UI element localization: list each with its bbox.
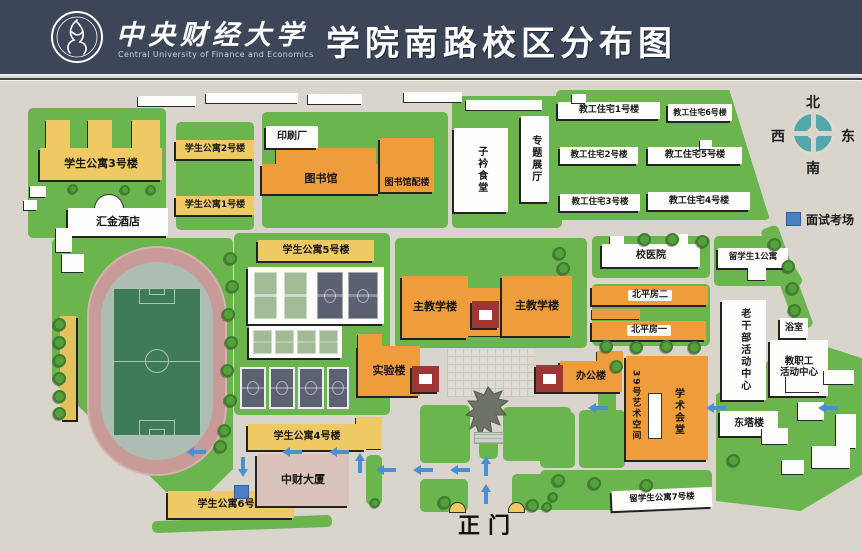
campus-map: 中央财经大学 Central University of Finance and… xyxy=(0,0,862,552)
building-apt5-label: 学生公寓5号楼 xyxy=(283,245,350,257)
tree-icon xyxy=(225,336,238,349)
building-intl-apt7-label: 留学生公寓7号楼 xyxy=(629,493,695,506)
tree-icon xyxy=(218,424,231,437)
building-intl-apt1-label: 留学生1公寓 xyxy=(729,253,777,263)
building-library-label: 图书馆 xyxy=(305,173,338,186)
building-intl-apt7: 留学生公寓7号楼 xyxy=(612,487,713,511)
route-arrow-left xyxy=(450,465,470,475)
building-fac4: 教工住宅4号楼 xyxy=(648,192,750,210)
building-lab: 实验楼 xyxy=(358,346,420,396)
tennis-court xyxy=(254,272,277,319)
building-lab-label: 实验楼 xyxy=(373,365,406,378)
office-tower xyxy=(536,365,563,392)
building-library-annex: 图书馆配楼 xyxy=(380,138,434,192)
volleyball-court xyxy=(275,330,294,354)
building-unlabeled xyxy=(466,100,542,110)
route-arrow-up xyxy=(355,453,365,473)
route-arrow-left xyxy=(282,447,302,457)
tower-window xyxy=(479,310,492,320)
building-unlabeled xyxy=(812,446,850,468)
building-office-label: 办公楼 xyxy=(576,371,606,383)
tree-icon xyxy=(638,233,651,246)
volleyball-court xyxy=(319,330,338,354)
tree-icon xyxy=(553,247,566,260)
tree-icon xyxy=(557,262,570,275)
building-unlabeled xyxy=(30,186,46,197)
tree-icon xyxy=(53,372,66,385)
tree-icon xyxy=(53,318,66,331)
building-unlabeled xyxy=(782,460,804,474)
tree-icon xyxy=(696,235,709,248)
building-unlabeled xyxy=(762,428,788,444)
tree-icon xyxy=(120,185,130,195)
building-unlabeled xyxy=(824,370,854,384)
route-arrow-left xyxy=(818,403,838,413)
university-name-en: Central University of Finance and Econom… xyxy=(118,50,314,59)
tree-icon xyxy=(542,502,552,512)
tower-window xyxy=(419,374,432,384)
tree-icon xyxy=(660,340,673,353)
building-exhibit-hall-label: 专题展厅 xyxy=(529,135,541,183)
legend-interview-label: 面试考场 xyxy=(806,211,854,228)
building-print-shop: 印刷厂 xyxy=(266,126,318,148)
tree-icon xyxy=(53,336,66,349)
building-apt3-wing xyxy=(132,120,160,150)
tree-icon xyxy=(788,304,801,317)
tree-icon xyxy=(226,280,239,293)
building-exhibit-hall: 专题展厅 xyxy=(521,116,549,202)
building-fac6: 教工住宅6号楼 xyxy=(668,104,732,121)
building-hospital-label: 校医院 xyxy=(636,250,666,262)
building-cufe-tower: 中财大厦 xyxy=(257,454,349,506)
route-arrow-left xyxy=(376,465,396,475)
route-arrow-down xyxy=(238,457,248,477)
building-fac1: 教工住宅1号楼 xyxy=(558,102,660,119)
grandstand xyxy=(60,316,76,420)
tree-icon xyxy=(53,354,66,367)
tree-icon xyxy=(552,474,565,487)
university-name: 中央财经大学 xyxy=(116,13,308,52)
building-apt3-label: 学生公寓3号楼 xyxy=(64,158,138,171)
building-art-space39-label: 39号艺术空间 xyxy=(630,370,640,454)
tree-icon xyxy=(221,364,234,377)
tree-icon xyxy=(600,340,613,353)
building-veteran-center-label: 老干部活动中心 xyxy=(738,308,750,392)
tree-icon xyxy=(370,498,380,508)
tree-icon xyxy=(68,184,78,194)
tree-icon xyxy=(214,440,227,453)
building-library-annex-label: 图书馆配楼 xyxy=(384,178,429,188)
header-divider xyxy=(0,78,862,81)
compass-east: 东 xyxy=(841,126,855,146)
building-fac5: 教工住宅5号楼 xyxy=(648,147,742,164)
building-apt3: 学生公寓3号楼 xyxy=(40,148,162,180)
building-unlabeled xyxy=(836,414,856,448)
pitch-goal-box-bottom xyxy=(149,429,165,436)
building-fac3: 教工住宅3号楼 xyxy=(560,194,640,211)
lab-tower xyxy=(412,366,439,392)
building-main-teaching-west: 主教学楼 xyxy=(402,276,468,338)
route-arrow-left xyxy=(186,447,206,457)
building-canteen: 子衿食堂 xyxy=(454,128,508,212)
building-unlabeled xyxy=(62,254,84,272)
building-apt2: 学生公寓2号楼 xyxy=(176,140,254,159)
compass-north: 北 xyxy=(806,92,820,112)
building-unlabeled xyxy=(308,94,362,104)
basketball-court xyxy=(327,367,349,409)
building-fac5-label: 教工住宅5号楼 xyxy=(665,150,725,160)
building-unlabeled xyxy=(24,200,37,210)
compass-rose-icon xyxy=(791,111,835,155)
hall-white-bar xyxy=(648,393,662,439)
building-apt3-wing xyxy=(46,120,70,150)
building-unlabeled xyxy=(404,92,462,102)
tree-icon xyxy=(588,477,601,490)
building-beiping2: 北平房二 xyxy=(592,286,708,305)
volleyball-court xyxy=(253,330,272,354)
building-beiping-mid xyxy=(592,309,640,319)
building-apt1-label: 学生公寓1号楼 xyxy=(185,200,245,210)
building-beiping2-label: 北平房二 xyxy=(628,290,672,300)
building-unlabeled xyxy=(138,96,196,106)
building-fac4-label: 教工住宅4号楼 xyxy=(669,196,729,206)
tree-icon xyxy=(526,499,539,512)
route-arrow-left xyxy=(329,447,349,457)
tree-icon xyxy=(548,492,558,502)
compass-west: 西 xyxy=(771,126,785,146)
header-bar: 中央财经大学 Central University of Finance and… xyxy=(0,0,862,76)
route-arrow-left xyxy=(706,403,726,413)
building-intl-apt1: 留学生1公寓 xyxy=(718,248,788,268)
tree-icon xyxy=(782,260,795,273)
compass-center xyxy=(807,127,819,139)
building-fac1-label: 教工住宅1号楼 xyxy=(579,105,639,115)
route-arrow-left xyxy=(588,403,608,413)
basketball-court xyxy=(348,272,378,319)
interview-venue-marker xyxy=(234,485,249,499)
building-fac6-label: 教工住宅6号楼 xyxy=(673,108,727,117)
tree-icon xyxy=(630,341,643,354)
building-hospital: 校医院 xyxy=(602,244,700,267)
building-unlabeled xyxy=(700,140,712,149)
tree-icon xyxy=(222,308,235,321)
building-bathhouse: 浴室 xyxy=(780,318,808,338)
statue xyxy=(462,386,514,438)
tower-window xyxy=(543,374,556,384)
building-east-tower-label: 东塔楼 xyxy=(734,418,764,430)
tree-icon xyxy=(146,185,156,195)
tree-icon xyxy=(640,479,653,492)
basketball-court xyxy=(317,272,343,319)
building-apt4-label: 学生公寓4号楼 xyxy=(274,431,341,443)
building-fac2: 教工住宅2号楼 xyxy=(560,147,638,164)
basketball-court xyxy=(298,367,324,409)
building-apt2-label: 学生公寓2号楼 xyxy=(185,144,245,154)
tree-icon xyxy=(224,394,237,407)
main-gate-label: 正门 xyxy=(458,508,518,540)
building-hotel: 汇金酒店 xyxy=(68,208,168,236)
building-bathhouse-label: 浴室 xyxy=(785,323,803,333)
building-academic-hall-label: 学术会堂 xyxy=(672,388,684,452)
tree-icon xyxy=(438,496,451,509)
route-arrow-left xyxy=(413,465,433,475)
building-veteran-center: 老干部活动中心 xyxy=(722,300,766,400)
building-fac3-label: 教工住宅3号楼 xyxy=(572,198,629,208)
building-print-shop-label: 印刷厂 xyxy=(277,131,307,143)
green-zone xyxy=(540,412,575,468)
building-unlabeled xyxy=(786,376,820,392)
building-main-teaching-west-label: 主教学楼 xyxy=(413,301,457,314)
tree-icon xyxy=(610,360,623,373)
building-apt5: 学生公寓5号楼 xyxy=(258,240,374,261)
route-arrow-up xyxy=(481,456,491,476)
tree-icon xyxy=(727,454,740,467)
compass-south: 南 xyxy=(806,158,820,178)
statue-pedestal xyxy=(474,432,504,444)
tennis-court xyxy=(284,272,307,319)
building-unlabeled xyxy=(748,268,766,280)
building-beiping1: 北平房一 xyxy=(592,321,706,340)
building-main-teaching-east: 主教学楼 xyxy=(502,276,572,336)
map-title: 学院南路校区分布图 xyxy=(326,16,677,65)
tree-icon xyxy=(224,252,237,265)
building-library: 图书馆 xyxy=(262,164,380,194)
tree-icon xyxy=(768,238,781,251)
tree-icon xyxy=(666,233,679,246)
building-unlabeled xyxy=(56,228,72,252)
basketball-court xyxy=(269,367,295,409)
teaching-tower xyxy=(472,301,499,328)
building-beiping1-label: 北平房一 xyxy=(627,325,671,335)
building-cufe-tower-label: 中财大厦 xyxy=(281,474,325,487)
building-unlabeled xyxy=(206,93,298,103)
university-seal-icon xyxy=(50,10,104,64)
building-fac2-label: 教工住宅2号楼 xyxy=(571,151,628,161)
building-main-teaching-east-label: 主教学楼 xyxy=(515,300,559,313)
route-arrow-up xyxy=(481,484,491,504)
pitch-center-circle xyxy=(145,349,169,373)
building-canteen-label: 子衿食堂 xyxy=(475,146,487,194)
volleyball-court xyxy=(297,330,316,354)
tree-icon xyxy=(688,341,701,354)
building-apt3-wing xyxy=(88,120,112,150)
tree-icon xyxy=(53,407,66,420)
building-apt6-label: 学生公寓6号楼 xyxy=(198,499,265,511)
basketball-court xyxy=(240,367,266,409)
tree-icon xyxy=(786,282,799,295)
tree-icon xyxy=(53,390,66,403)
building-apt1: 学生公寓1号楼 xyxy=(176,196,254,215)
building-hotel-label: 汇金酒店 xyxy=(96,216,140,229)
pitch-goal-box-top xyxy=(149,288,165,295)
building-unlabeled xyxy=(572,94,586,103)
legend-interview-swatch xyxy=(786,212,801,226)
